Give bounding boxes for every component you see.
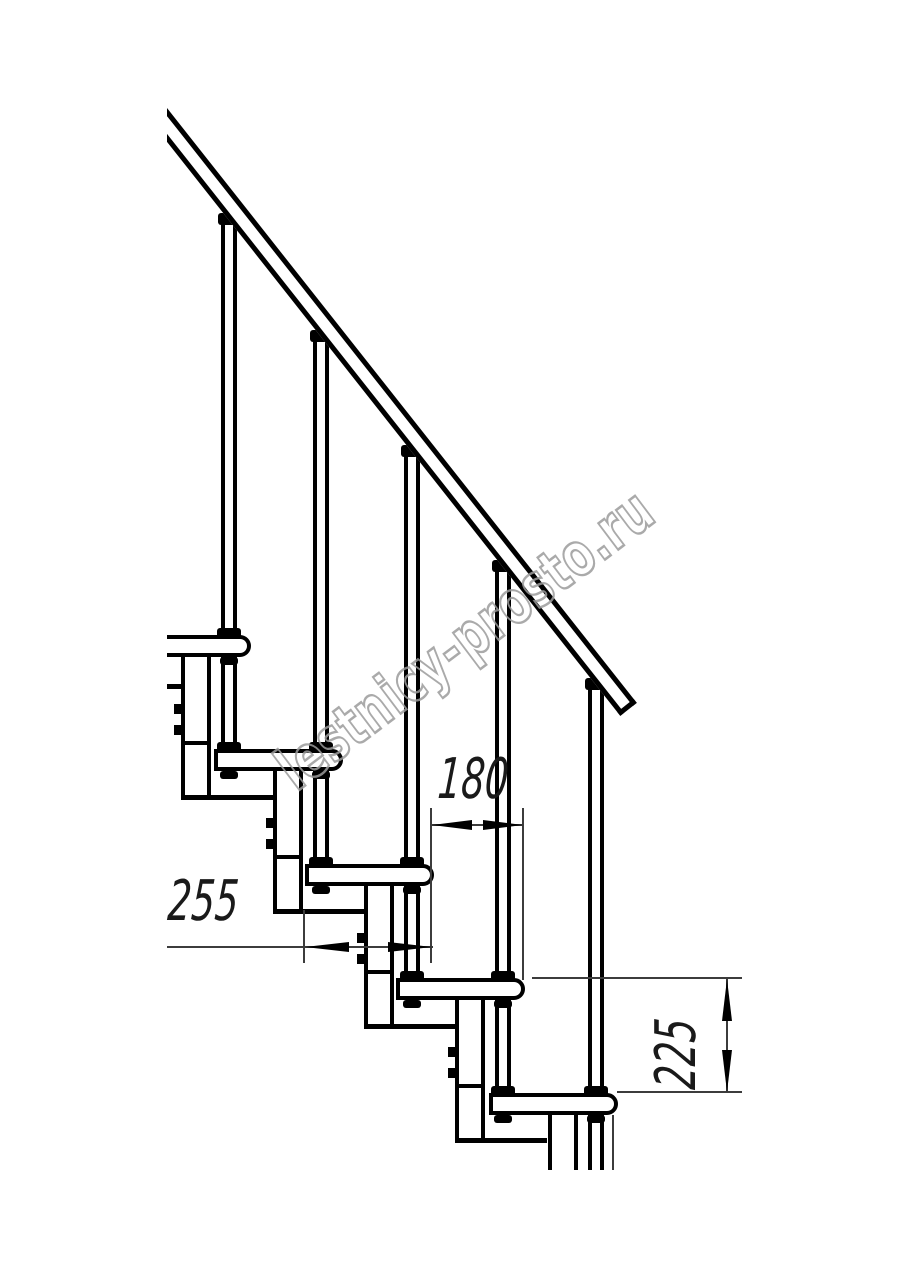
dim-180-arrow-right (483, 820, 523, 830)
baluster-2-lower-tread-nut (312, 886, 330, 894)
dim-255-arrow-left (305, 942, 349, 952)
staircase-drawing: 255 180 225 lestnicy-prosto.ru (0, 0, 914, 1280)
dim-180-extension-line-right (522, 808, 524, 980)
dim-180-label: 180 (436, 752, 543, 808)
baluster-3-tread-under-nut (403, 886, 421, 894)
tread-3 (305, 864, 434, 886)
baluster-4-lower-rod (495, 996, 511, 1097)
spine-module-1-base-plate (181, 795, 273, 800)
spine-module-3-joint-line (364, 970, 394, 974)
baluster-3-lower-rod (404, 882, 420, 982)
baluster-4-lower-tread-nut (494, 1115, 512, 1123)
spine-module-2-bolt-1 (266, 818, 275, 828)
spine-module-3-base-plate (364, 1024, 456, 1029)
dim-225-arrow-up (722, 979, 732, 1021)
dim-225-arrow-down (722, 1050, 732, 1092)
spine-module-4-joint-line (455, 1084, 485, 1088)
dim-225-label: 225 (649, 968, 705, 1108)
dim-180-extension-line-left (430, 808, 432, 963)
spine-module-2-joint-line (273, 855, 303, 859)
dim-255-arrow-right (388, 942, 432, 952)
spine-module-3 (364, 882, 394, 1029)
dim-180-arrow-left (432, 820, 472, 830)
spine-module-5 (548, 1111, 578, 1170)
handrail (167, 108, 637, 716)
dim-255-label: 255 (166, 874, 273, 930)
dim-255-extension-line (303, 910, 305, 963)
baluster-3-lower-tread-nut (403, 1000, 421, 1008)
spine-module-4 (455, 996, 485, 1143)
spine-module-4-bolt-2 (448, 1068, 457, 1078)
spine-module-3-bolt-2 (357, 954, 366, 964)
spine-module-2-bolt-2 (266, 839, 275, 849)
spine-module-4-bolt-1 (448, 1047, 457, 1057)
baluster-4-tread-under-nut (494, 1000, 512, 1008)
bottom-tread-hidden-edge (612, 1115, 614, 1170)
spine-module-3-bolt-1 (357, 933, 366, 943)
baluster-5-tread-under-nut (587, 1115, 605, 1123)
tread-4 (396, 978, 525, 1000)
handrail-clip (167, 0, 707, 790)
spine-module-4-base-plate (455, 1138, 547, 1143)
spine-module-2-base-plate (273, 909, 365, 914)
dim-225-extension-line-top (532, 977, 742, 979)
tread-5 (489, 1093, 618, 1115)
